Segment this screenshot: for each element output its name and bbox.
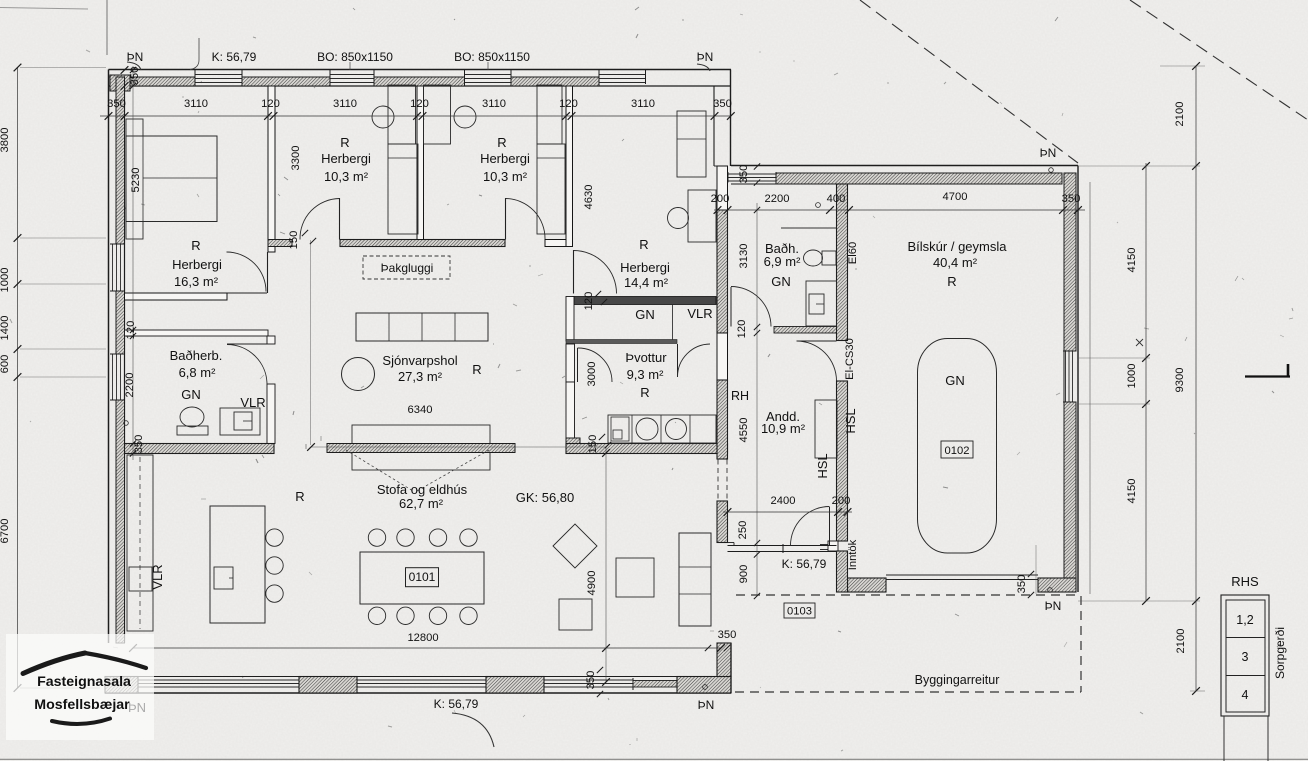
- svg-text:Fasteignasala: Fasteignasala: [37, 674, 131, 690]
- svg-text:250: 250: [737, 521, 749, 540]
- svg-text:350: 350: [585, 671, 597, 690]
- svg-text:Bílskúr / geymsla: Bílskúr / geymsla: [908, 239, 1008, 254]
- svg-text:VLR: VLR: [240, 395, 265, 410]
- svg-text:10,3 m²: 10,3 m²: [324, 169, 369, 184]
- svg-text:R: R: [947, 274, 956, 289]
- svg-text:3000: 3000: [586, 362, 598, 387]
- svg-text:Herbergi: Herbergi: [620, 260, 670, 275]
- svg-text:1000: 1000: [0, 268, 11, 293]
- svg-text:120: 120: [583, 292, 595, 311]
- svg-text:200: 200: [711, 193, 730, 205]
- svg-text:350: 350: [718, 629, 737, 641]
- svg-text:3800: 3800: [0, 128, 11, 153]
- svg-text:Mosfellsbæjar: Mosfellsbæjar: [34, 697, 130, 713]
- svg-text:0102: 0102: [945, 445, 970, 457]
- svg-text:K: 56,79: K: 56,79: [212, 50, 257, 64]
- svg-text:K: 56,79: K: 56,79: [434, 697, 479, 711]
- svg-text:12800: 12800: [407, 632, 438, 644]
- svg-text:62,7 m²: 62,7 m²: [399, 496, 444, 511]
- svg-text:4900: 4900: [586, 571, 598, 596]
- svg-text:R: R: [340, 135, 349, 150]
- svg-text:GK: 56,80: GK: 56,80: [516, 490, 575, 505]
- svg-text:2200: 2200: [124, 373, 136, 398]
- svg-text:Þakgluggi: Þakgluggi: [381, 261, 434, 275]
- svg-text:R: R: [639, 237, 648, 252]
- svg-text:9300: 9300: [1174, 368, 1186, 393]
- svg-text:350: 350: [107, 98, 126, 110]
- svg-text:10,3 m²: 10,3 m²: [483, 169, 528, 184]
- svg-text:10,9 m²: 10,9 m²: [761, 421, 806, 436]
- svg-text:Inntök: Inntök: [847, 539, 859, 570]
- svg-text:40,4 m²: 40,4 m²: [933, 255, 978, 270]
- svg-text:GN: GN: [181, 387, 201, 402]
- svg-text:ÞN: ÞN: [697, 50, 714, 64]
- svg-text:Herbergi: Herbergi: [172, 257, 222, 272]
- svg-text:3110: 3110: [184, 98, 208, 110]
- svg-text:150: 150: [288, 231, 300, 250]
- svg-text:ÞN: ÞN: [1040, 146, 1057, 160]
- svg-text:16,3 m²: 16,3 m²: [174, 274, 219, 289]
- svg-text:4: 4: [1242, 688, 1249, 702]
- svg-text:El60: El60: [847, 242, 859, 264]
- svg-text:VLR: VLR: [150, 564, 165, 589]
- svg-text:3: 3: [1242, 650, 1249, 664]
- svg-text:0103: 0103: [787, 606, 812, 618]
- svg-text:350: 350: [1016, 575, 1028, 594]
- svg-text:6700: 6700: [0, 519, 11, 544]
- svg-text:600: 600: [0, 355, 11, 374]
- svg-text:0101: 0101: [409, 570, 436, 584]
- svg-text:3300: 3300: [290, 146, 302, 171]
- svg-text:Sjónvarpshol: Sjónvarpshol: [382, 353, 457, 368]
- svg-text:2100: 2100: [1175, 629, 1187, 654]
- svg-text:BO: 850x1150: BO: 850x1150: [454, 50, 530, 64]
- svg-text:Herbergi: Herbergi: [321, 151, 371, 166]
- svg-text:1400: 1400: [0, 316, 11, 341]
- svg-text:27,3 m²: 27,3 m²: [398, 369, 443, 384]
- svg-text:6,8 m²: 6,8 m²: [179, 365, 217, 380]
- svg-text:ÞN: ÞN: [128, 700, 146, 715]
- svg-text:2400: 2400: [771, 495, 796, 507]
- svg-text:120: 120: [559, 98, 578, 110]
- svg-text:R: R: [191, 238, 200, 253]
- svg-text:VLR: VLR: [687, 306, 712, 321]
- svg-text:9,3 m²: 9,3 m²: [627, 367, 665, 382]
- svg-text:RHS: RHS: [1231, 574, 1259, 589]
- svg-text:2100: 2100: [1174, 102, 1186, 127]
- svg-text:350: 350: [713, 98, 732, 110]
- svg-text:3130: 3130: [738, 244, 750, 269]
- svg-text:400: 400: [827, 193, 846, 205]
- svg-text:Baðherb.: Baðherb.: [170, 348, 223, 363]
- svg-text:350: 350: [1062, 193, 1081, 205]
- svg-text:ÞN: ÞN: [698, 698, 715, 712]
- svg-text:2200: 2200: [765, 193, 790, 205]
- svg-text:Þvottur: Þvottur: [625, 350, 667, 365]
- svg-text:R: R: [472, 362, 481, 377]
- svg-text:ÞN: ÞN: [1045, 599, 1062, 613]
- svg-text:200: 200: [832, 495, 851, 507]
- svg-text:4630: 4630: [583, 185, 595, 210]
- svg-text:GN: GN: [771, 274, 791, 289]
- svg-text:El-CS30: El-CS30: [844, 338, 856, 380]
- svg-text:350: 350: [129, 67, 141, 86]
- svg-text:4150: 4150: [1126, 248, 1138, 273]
- svg-text:120: 120: [736, 320, 748, 339]
- svg-text:4700: 4700: [943, 191, 968, 203]
- svg-text:Stofa og eldhús: Stofa og eldhús: [377, 482, 468, 497]
- svg-text:HSL: HSL: [815, 453, 830, 478]
- svg-text:5230: 5230: [130, 168, 142, 193]
- svg-text:Byggingarreitur: Byggingarreitur: [915, 673, 1000, 687]
- svg-text:4150: 4150: [1126, 479, 1138, 504]
- svg-text:BO: 850x1150: BO: 850x1150: [317, 50, 393, 64]
- svg-text:4550: 4550: [738, 418, 750, 443]
- svg-text:Sorpgerði: Sorpgerði: [1273, 627, 1287, 679]
- svg-text:1,2: 1,2: [1236, 613, 1253, 627]
- svg-text:3110: 3110: [631, 98, 655, 110]
- svg-text:6340: 6340: [408, 404, 433, 416]
- svg-text:14,4 m²: 14,4 m²: [624, 275, 669, 290]
- svg-text:350: 350: [133, 435, 145, 454]
- svg-text:900: 900: [738, 565, 750, 584]
- svg-text:GN: GN: [945, 373, 965, 388]
- svg-text:1000: 1000: [1126, 364, 1138, 389]
- svg-text:350: 350: [738, 165, 750, 184]
- svg-text:Herbergi: Herbergi: [480, 151, 530, 166]
- svg-text:120: 120: [410, 98, 429, 110]
- svg-text:R: R: [497, 135, 506, 150]
- svg-text:6,9 m²: 6,9 m²: [764, 254, 802, 269]
- svg-text:K: 56,79: K: 56,79: [782, 557, 827, 571]
- svg-text:3110: 3110: [333, 98, 357, 110]
- svg-text:150: 150: [587, 435, 599, 454]
- svg-text:GN: GN: [635, 307, 655, 322]
- svg-text:3110: 3110: [482, 98, 506, 110]
- svg-text:120: 120: [261, 98, 280, 110]
- svg-text:120: 120: [125, 321, 137, 340]
- svg-text:RH: RH: [731, 389, 749, 403]
- svg-text:HSL: HSL: [843, 408, 858, 433]
- svg-text:R: R: [295, 489, 304, 504]
- svg-text:R: R: [640, 385, 649, 400]
